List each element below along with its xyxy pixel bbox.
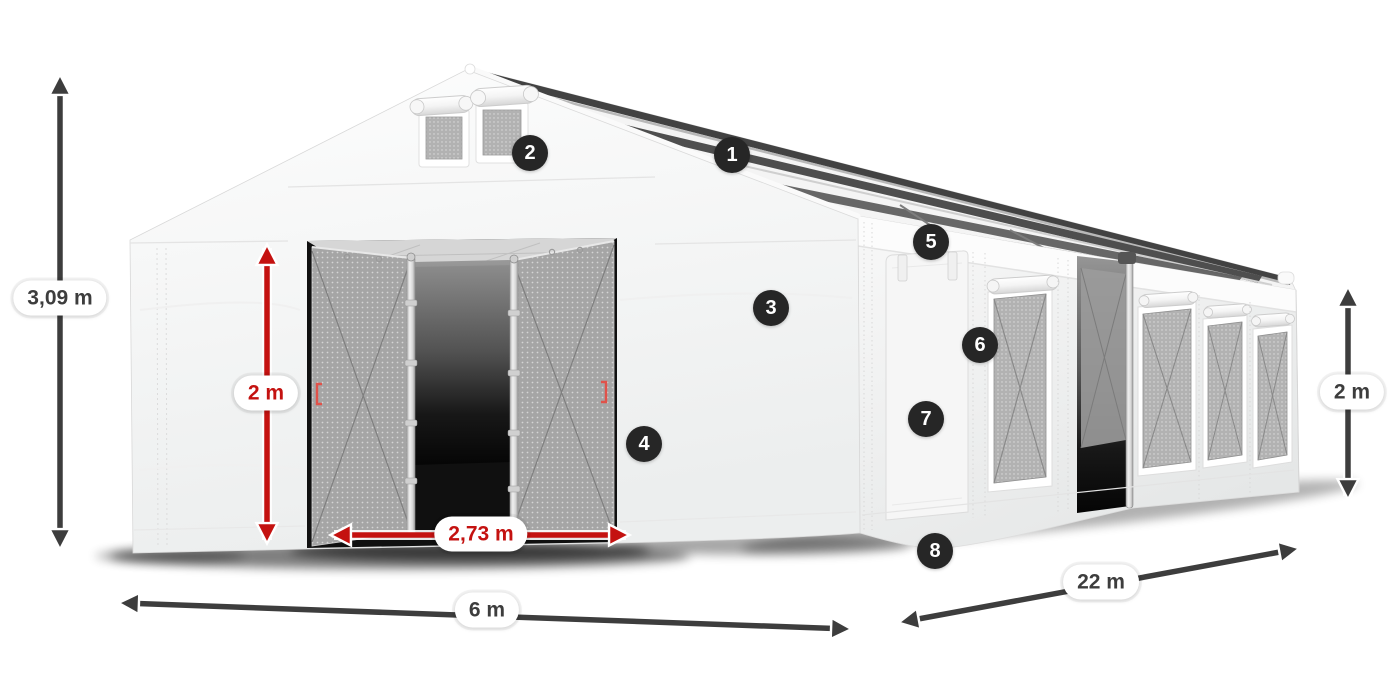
hotspot-marker-5[interactable]: 5 bbox=[913, 224, 949, 260]
gable-vent-left bbox=[409, 95, 473, 167]
entrance bbox=[307, 238, 617, 548]
dimension-label-entrance-width: 2,73 m bbox=[434, 517, 527, 552]
hotspot-marker-6[interactable]: 6 bbox=[962, 327, 998, 363]
peak-cap bbox=[465, 64, 475, 74]
entrance-left-door-mesh bbox=[312, 247, 410, 546]
hotspot-marker-2[interactable]: 2 bbox=[512, 135, 548, 171]
frame-pole bbox=[1126, 258, 1133, 508]
entrance-pole-right bbox=[508, 255, 520, 534]
hotspot-marker-3[interactable]: 3 bbox=[753, 290, 789, 326]
door-strap bbox=[898, 255, 907, 281]
side-window-a bbox=[987, 275, 1060, 492]
hotspot-marker-4[interactable]: 4 bbox=[626, 426, 662, 462]
entrance-right-door-mesh bbox=[514, 241, 614, 538]
tent-illustration bbox=[0, 0, 1400, 700]
entrance-pole-left bbox=[405, 253, 417, 537]
hotspot-marker-1[interactable]: 1 bbox=[714, 137, 750, 173]
side-window-1 bbox=[1138, 291, 1198, 476]
side-door bbox=[886, 251, 968, 520]
tent-dimension-diagram: 3,09 m 2 m 2,73 m 6 m 22 m 2 m 1 2 3 4 5… bbox=[0, 0, 1400, 700]
dimension-label-total-height: 3,09 m bbox=[13, 281, 106, 316]
dimension-label-side-wall-height: 2 m bbox=[1320, 375, 1384, 410]
ridge-end-cap bbox=[1278, 272, 1294, 284]
dimension-label-entrance-height: 2 m bbox=[234, 376, 298, 411]
entrance-back-gap bbox=[413, 260, 512, 465]
side-window-2 bbox=[1203, 303, 1252, 468]
dimension-label-front-width: 6 m bbox=[455, 593, 519, 628]
hotspot-marker-7[interactable]: 7 bbox=[908, 401, 944, 437]
side-window-3 bbox=[1251, 312, 1295, 468]
door-strap bbox=[948, 252, 957, 280]
frame-corner-bracket bbox=[1118, 252, 1136, 264]
side-doorway-open bbox=[1077, 252, 1136, 513]
dimension-label-side-length: 22 m bbox=[1063, 565, 1139, 600]
hotspot-marker-8[interactable]: 8 bbox=[917, 533, 953, 569]
